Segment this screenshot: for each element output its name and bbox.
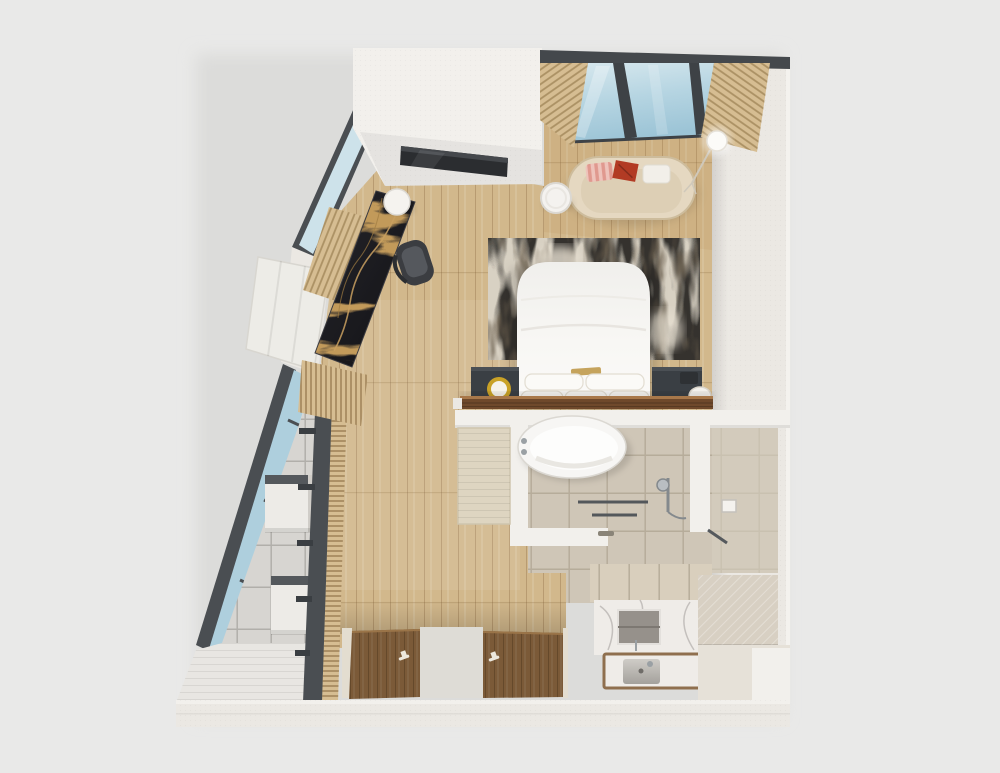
sink-drain [639,669,644,674]
door-left [349,629,420,699]
bottom-wall [176,700,790,727]
shower-drain [598,531,614,536]
entry-doors [342,627,568,699]
partition-rail [296,596,312,602]
desk-stool [384,189,410,215]
tub-faucet [521,449,527,455]
partition-rail [299,428,316,434]
bed-pillow [586,374,644,390]
bottom-wall-texture [176,700,790,727]
vanity [594,600,705,688]
bath-mat [458,428,510,524]
nightstand-decor [680,372,698,384]
shower-side-wall [690,424,710,532]
vanity-backsplash-grout [590,564,712,602]
tv-unit [353,48,542,186]
bed-pillow [525,374,583,390]
partition-rail [295,650,310,656]
bedroom [453,233,713,412]
right-wall-outer-edge [786,63,790,723]
toilet-paper-holder [722,500,736,512]
sofa-pillow-white [643,165,670,183]
door-jamb [563,628,568,698]
headboard-console [453,396,713,409]
partition-rail [298,484,315,490]
terrace-cabinet-upper [265,475,312,533]
corner-wall [752,648,790,700]
console-wall-cap [453,398,462,409]
sink-faucet [647,661,653,667]
door-divider-strip [420,627,483,698]
shower-partition-wall [522,528,608,546]
floor-lamp-shade [707,131,727,151]
tub-faucet [521,438,527,444]
door-right [483,631,563,698]
floorplan-render [0,0,1000,773]
partition-rail [297,540,313,546]
stone-bench [698,575,790,700]
sofa-pillow-striped [585,162,614,183]
